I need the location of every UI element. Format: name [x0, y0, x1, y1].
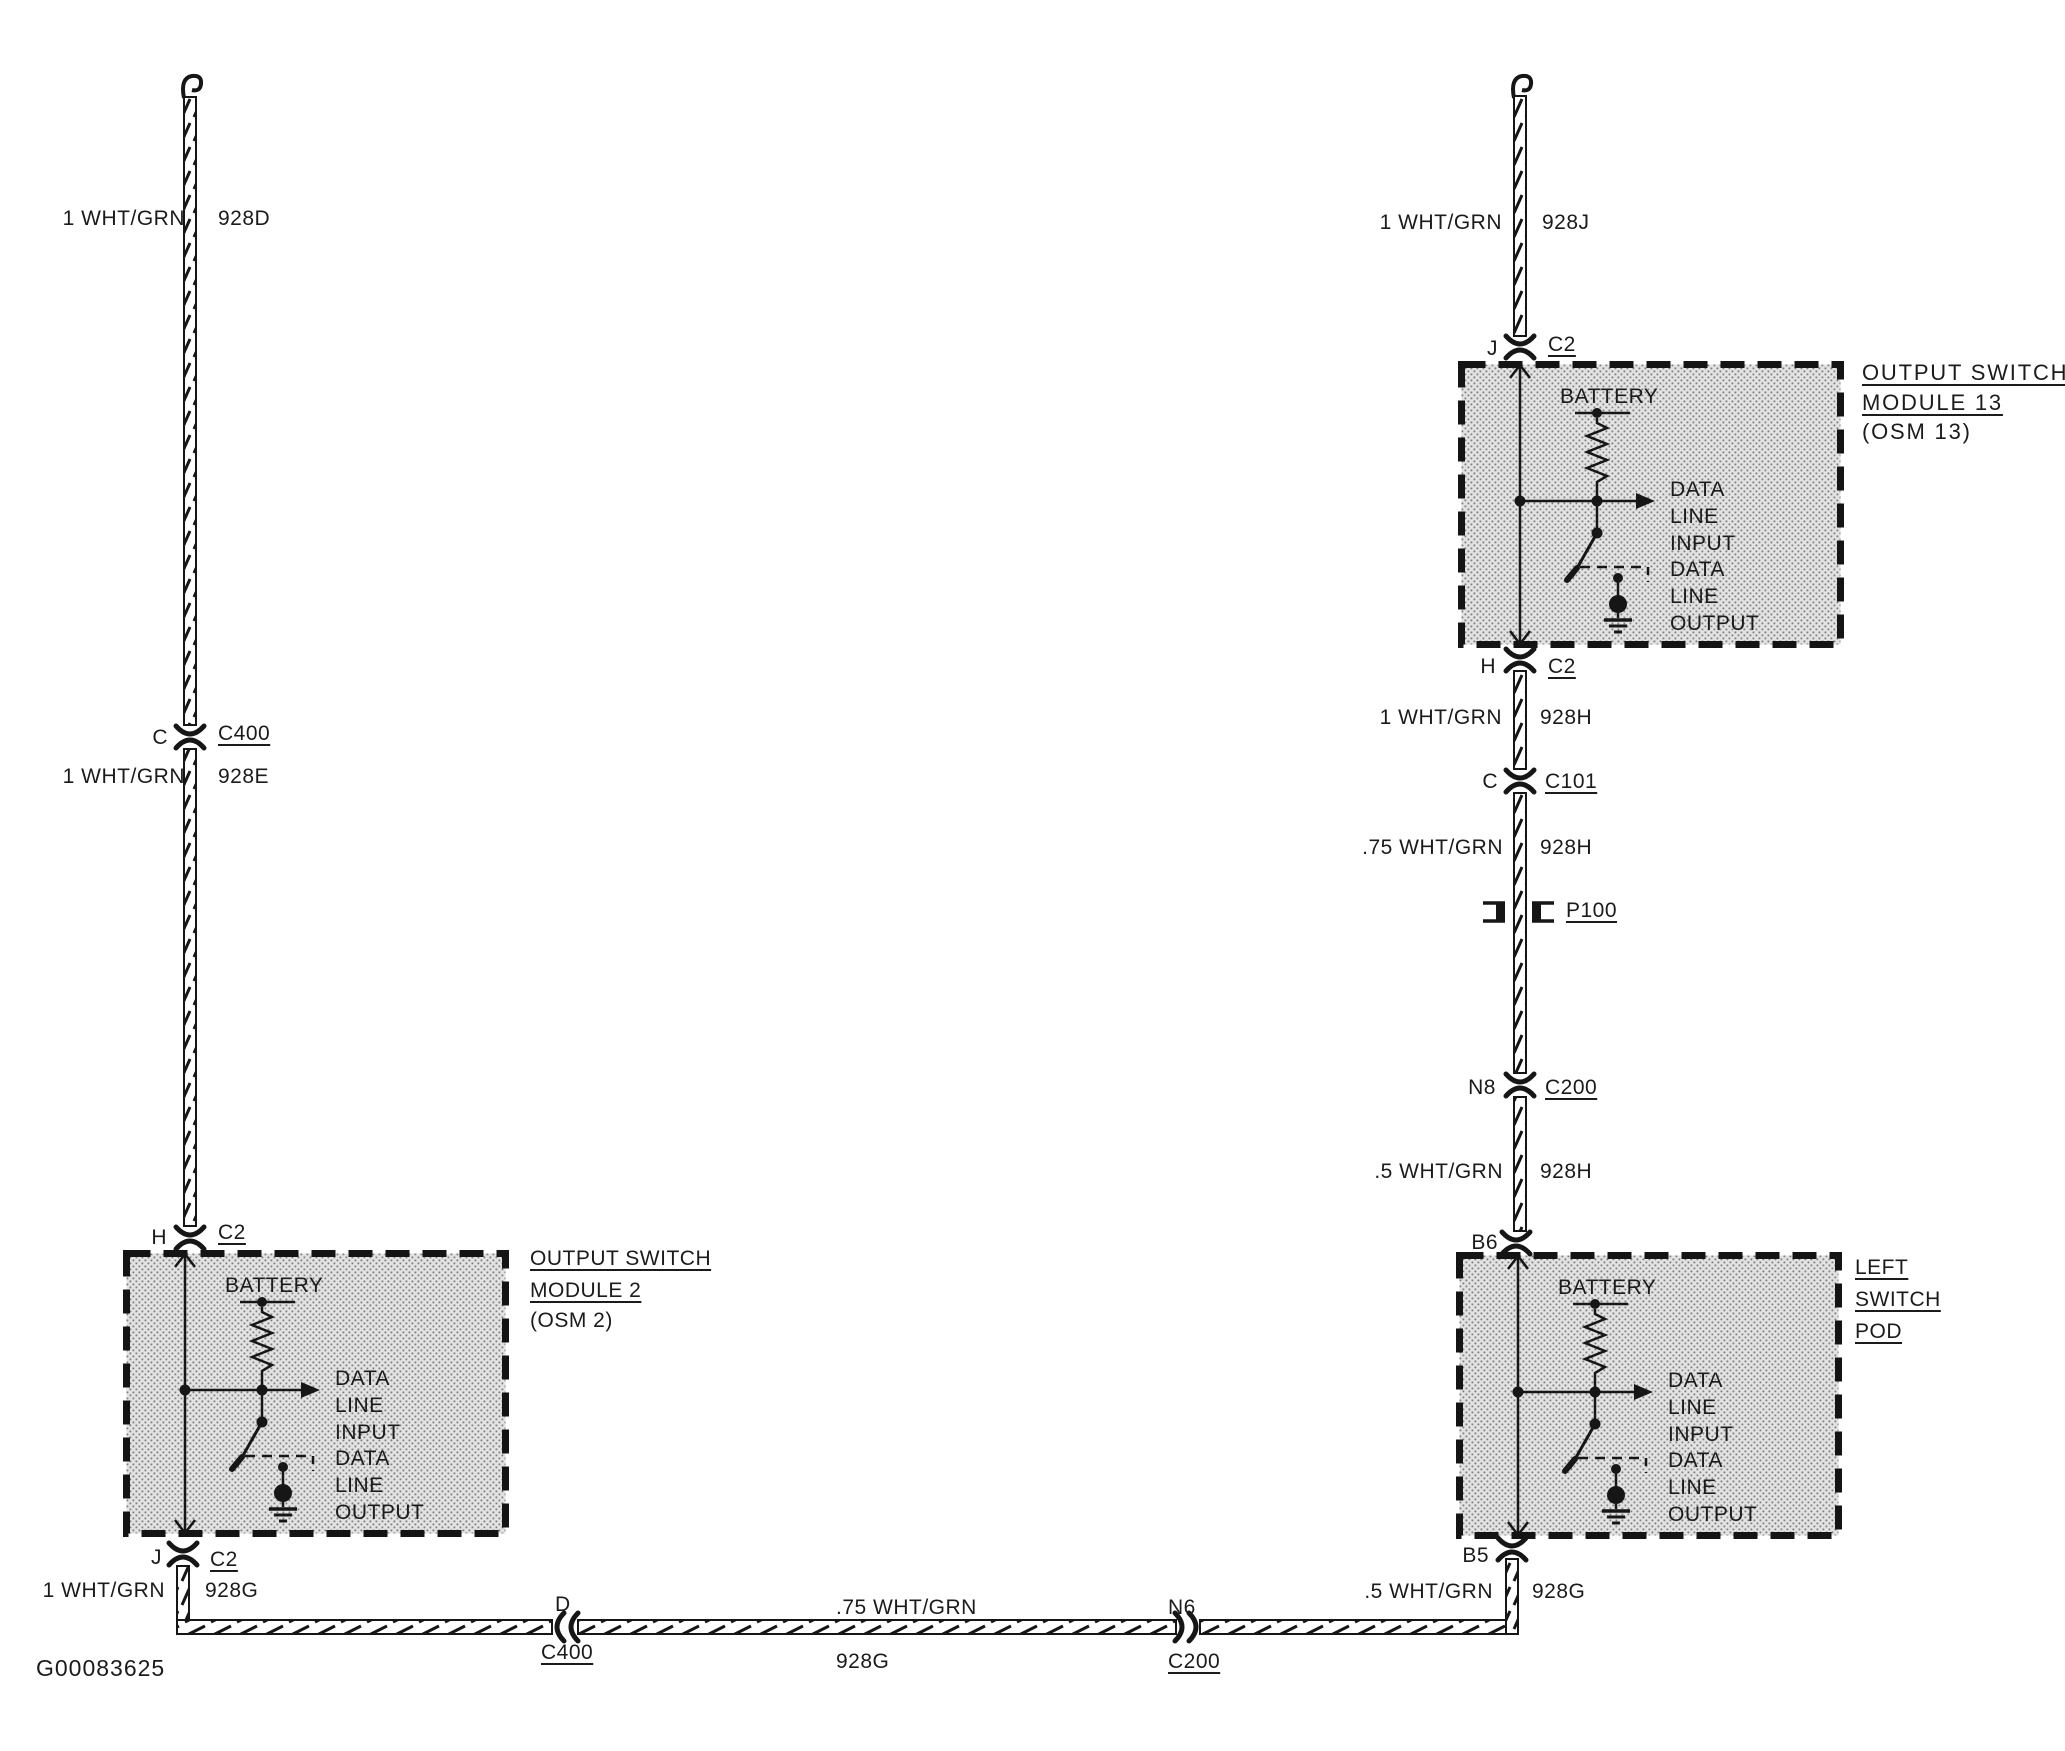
connector-symbol-c101: [1506, 770, 1534, 792]
connector-pin-c101: C: [1482, 770, 1498, 793]
wire-spec-928g-left: 1 WHT/GRN: [43, 1579, 165, 1602]
connector-symbol-c400-bottom: [557, 1613, 578, 1641]
wire-spec-928h-2: .75 WHT/GRN: [1362, 836, 1503, 859]
osm2-title-line3: (OSM 2): [530, 1309, 613, 1333]
osm13-io-line: LINE: [1670, 585, 1759, 612]
osm2-io-line: LINE: [335, 1474, 424, 1501]
connector-symbol-c2-osm2-top: [176, 1227, 204, 1249]
wire-928h-vertical: [1514, 671, 1526, 1231]
osm2-io-line: OUTPUT: [335, 1501, 424, 1528]
lsp-io-line: LINE: [1668, 1396, 1757, 1423]
lsp-title-line2: SWITCH: [1855, 1288, 1941, 1312]
osm13-title-line1: OUTPUT SWITCH: [1862, 360, 2065, 386]
osm2-io-line: INPUT: [335, 1421, 424, 1448]
wiring-diagram-page: 1 WHT/GRN 928D C C400 1 WHT/GRN 928E H C…: [0, 0, 2065, 1751]
osm13-battery-label: BATTERY: [1560, 385, 1658, 408]
connector-name-c101: C101: [1545, 770, 1597, 793]
lsp-title-line1: LEFT: [1855, 1256, 1908, 1280]
connector-symbol-b6: [1502, 1232, 1530, 1254]
wire-circuit-928d: 928D: [218, 207, 270, 230]
wire-end-curl: [1513, 76, 1531, 98]
wire-end-curl: [183, 76, 201, 98]
connector-name-c400-left: C400: [218, 722, 270, 745]
connector-name-c2-osm13-bottom: C2: [1548, 655, 1576, 678]
connector-pin-c2-osm13-top: J: [1487, 337, 1498, 360]
wire-circuit-928h-1: 928H: [1540, 706, 1592, 729]
osm13-title-line3: (OSM 13): [1862, 419, 1972, 445]
wire-spec-928d: 1 WHT/GRN: [63, 207, 185, 230]
lsp-io-line: DATA: [1668, 1449, 1757, 1476]
connector-name-c200-bottom: C200: [1168, 1650, 1220, 1673]
osm2-io-line: DATA: [335, 1367, 424, 1394]
osm13-io-line: DATA: [1670, 558, 1759, 585]
connector-pin-b6: B6: [1471, 1231, 1498, 1254]
connector-name-c2-osm13-top: C2: [1548, 333, 1576, 356]
connector-pin-c400-left: C: [152, 726, 168, 749]
connector-pin-c200-right: N8: [1468, 1076, 1496, 1099]
osm13-title-line2: MODULE 13: [1862, 390, 2003, 416]
wire-circuit-928e: 928E: [218, 765, 269, 788]
osm2-io-labels: DATA LINE INPUT DATA LINE OUTPUT: [335, 1367, 424, 1528]
lsp-title-line3: POD: [1855, 1320, 1902, 1344]
osm13-io-line: OUTPUT: [1670, 612, 1759, 639]
osm13-io-line: DATA: [1670, 478, 1759, 505]
wire-circuit-928g-right: 928G: [1532, 1580, 1585, 1603]
wire-spec-928j: 1 WHT/GRN: [1380, 211, 1502, 234]
wire-circuit-928j: 928J: [1542, 211, 1590, 234]
connector-name-c200-right: C200: [1545, 1076, 1597, 1099]
osm13-io-line: INPUT: [1670, 532, 1759, 559]
wire-spec-928g-mid: .75 WHT/GRN: [836, 1596, 977, 1619]
figure-id: G00083625: [36, 1655, 165, 1682]
connector-name-c2-osm2-bottom: C2: [210, 1548, 238, 1571]
connector-name-c400-bottom: C400: [541, 1641, 593, 1664]
lsp-io-labels: DATA LINE INPUT DATA LINE OUTPUT: [1668, 1369, 1757, 1530]
connector-symbol-c2-osm2-bottom: [169, 1543, 197, 1565]
connector-pin-c2-osm2-bottom: J: [151, 1546, 162, 1569]
osm2-io-line: LINE: [335, 1394, 424, 1421]
osm2-io-line: DATA: [335, 1447, 424, 1474]
connector-symbol-b5: [1498, 1538, 1526, 1560]
connector-symbol-c400-left: [176, 726, 204, 748]
lsp-io-line: DATA: [1668, 1369, 1757, 1396]
osm2-title-line1: OUTPUT SWITCH: [530, 1247, 711, 1271]
connector-pin-c2-osm2-top: H: [151, 1226, 167, 1249]
wire-spec-928h-1: 1 WHT/GRN: [1380, 706, 1502, 729]
wire-spec-928e: 1 WHT/GRN: [63, 765, 185, 788]
osm2-battery-label: BATTERY: [225, 1274, 323, 1297]
osm2-title-line2: MODULE 2: [530, 1279, 641, 1303]
osm13-io-line: LINE: [1670, 505, 1759, 532]
wire-circuit-928g-mid: 928G: [836, 1650, 889, 1673]
wire-spec-928h-3: .5 WHT/GRN: [1374, 1160, 1503, 1183]
connector-symbol-c2-osm13-bottom: [1506, 649, 1534, 671]
connector-name-c2-osm2-top: C2: [218, 1221, 246, 1244]
connector-pin-c400-bottom: D: [555, 1593, 571, 1616]
connector-pin-c2-osm13-bottom: H: [1480, 655, 1496, 678]
wire-circuit-928h-2: 928H: [1540, 836, 1592, 859]
lsp-io-line: INPUT: [1668, 1423, 1757, 1450]
osm13-io-labels: DATA LINE INPUT DATA LINE OUTPUT: [1670, 478, 1759, 639]
lsp-battery-label: BATTERY: [1558, 1276, 1656, 1299]
connector-name-p100: P100: [1566, 899, 1617, 922]
connector-symbol-c2-osm13-top: [1506, 336, 1534, 358]
lsp-io-line: LINE: [1668, 1476, 1757, 1503]
wire-spec-928g-right: .5 WHT/GRN: [1364, 1580, 1493, 1603]
wire-circuit-928h-3: 928H: [1540, 1160, 1592, 1183]
connector-pin-c200-bottom: N6: [1168, 1596, 1196, 1619]
connector-symbol-c200-right: [1506, 1074, 1534, 1096]
wire-928d-vertical: [183, 76, 201, 1226]
lsp-io-line: OUTPUT: [1668, 1503, 1757, 1530]
wire-circuit-928g-left: 928G: [205, 1579, 258, 1602]
wire-928j-vertical: [1513, 76, 1531, 336]
connector-pin-b5: B5: [1462, 1544, 1489, 1567]
